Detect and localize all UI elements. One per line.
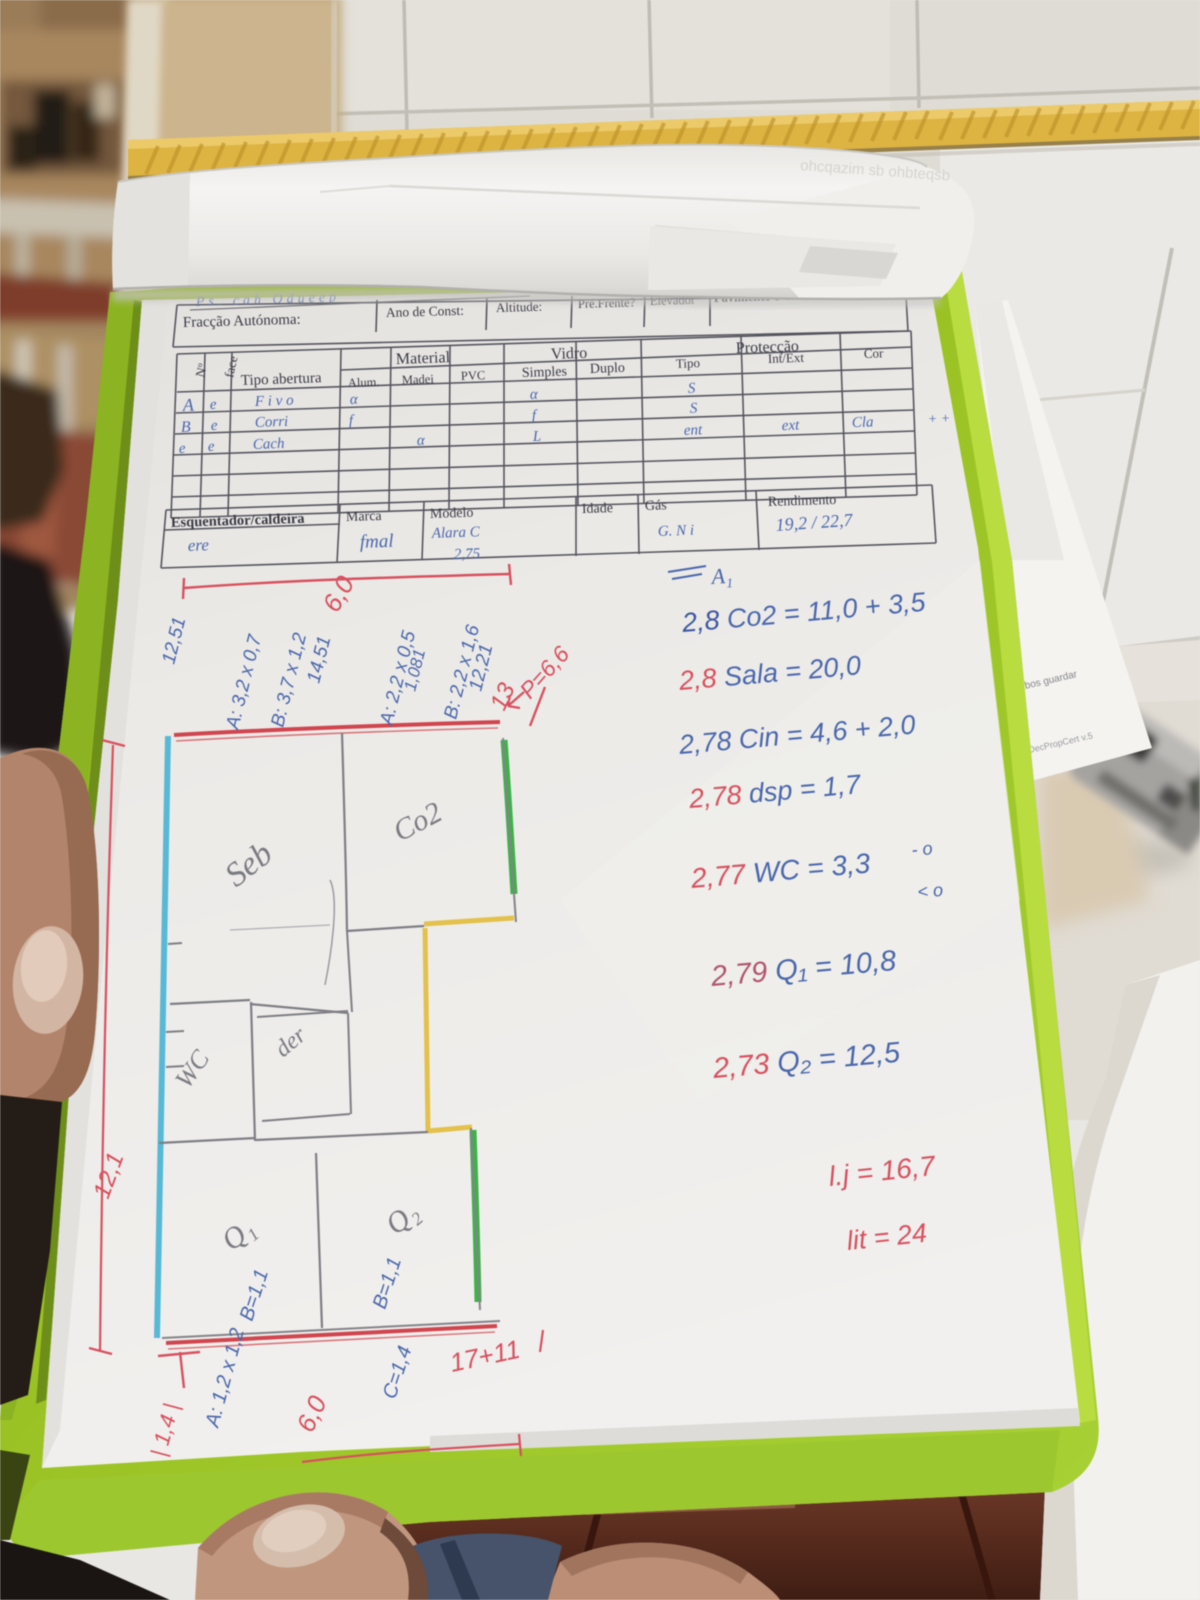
svg-text:2,75: 2,75: [454, 546, 481, 563]
svg-text:Tipo abertura: Tipo abertura: [241, 370, 323, 389]
svg-text:Modelo: Modelo: [430, 506, 474, 522]
svg-text:Fracção Autónoma:: Fracção Autónoma:: [183, 312, 301, 331]
svg-text:Cla: Cla: [852, 414, 874, 431]
svg-text:fmal: fmal: [359, 531, 393, 553]
svg-text:ere: ere: [187, 535, 209, 555]
svg-text:L: L: [532, 429, 542, 445]
svg-text:< o: < o: [917, 880, 944, 902]
svg-text:Cach: Cach: [253, 436, 285, 453]
svg-text:Gás: Gás: [645, 498, 667, 514]
svg-text:Marca: Marca: [346, 509, 383, 525]
svg-text:A: A: [181, 395, 195, 415]
svg-text:- o: - o: [911, 838, 934, 860]
svg-text:F i v o: F i v o: [254, 393, 295, 410]
svg-text:Idade: Idade: [582, 501, 614, 517]
svg-text:Ano de Const:: Ano de Const:: [386, 303, 464, 320]
svg-text:Material: Material: [396, 349, 451, 368]
svg-text:Vidro: Vidro: [551, 345, 588, 363]
svg-text:Corri: Corri: [255, 414, 289, 431]
svg-text:e: e: [211, 418, 219, 434]
svg-text:ent: ent: [684, 422, 704, 439]
svg-text:Simples: Simples: [522, 364, 568, 381]
svg-text:Rendimento: Rendimento: [768, 493, 837, 510]
svg-text:Tipo: Tipo: [676, 355, 701, 371]
svg-text:e: e: [210, 397, 218, 413]
svg-text:Alara C: Alara C: [431, 524, 481, 542]
svg-text:e: e: [179, 441, 187, 457]
svg-text:PVC: PVC: [461, 368, 486, 383]
svg-text:Cor: Cor: [864, 345, 885, 361]
svg-text:B: B: [181, 419, 192, 436]
svg-text:ext: ext: [782, 418, 801, 435]
svg-text:S: S: [688, 381, 697, 397]
svg-text:e: e: [208, 439, 216, 455]
svg-text:+ +: + +: [928, 412, 951, 428]
svg-text:A₁: A₁: [709, 563, 734, 590]
svg-text:G. N i: G. N i: [658, 523, 695, 540]
svg-text:Alum.: Alum.: [348, 375, 380, 390]
svg-text:Madei: Madei: [402, 372, 435, 387]
svg-text:S: S: [690, 401, 699, 417]
svg-text:Int/Ext: Int/Ext: [768, 350, 805, 366]
svg-text:Duplo: Duplo: [590, 361, 626, 377]
